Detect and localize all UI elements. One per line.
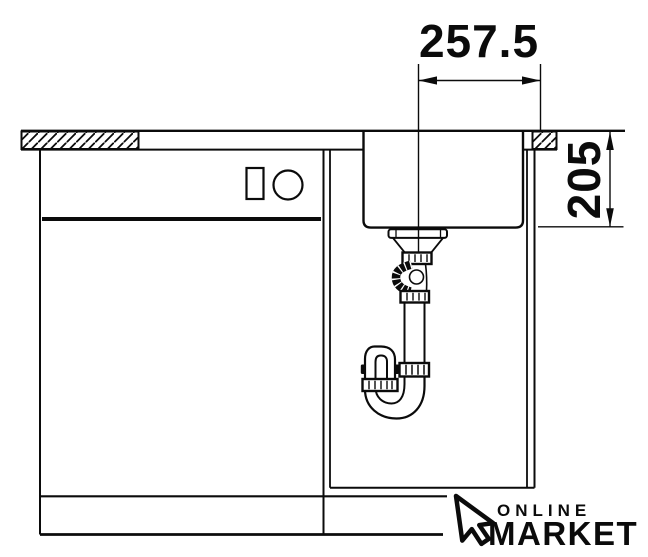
dimension-width: 257.5 (419, 15, 541, 130)
logo: ONLINE MARKET (456, 491, 638, 552)
width-dimension-label: 257.5 (419, 15, 539, 67)
countertop (21, 131, 625, 150)
countertop-hatch-left (22, 132, 139, 150)
outlet-loop-outer (365, 347, 395, 382)
countertop-hatch-right (533, 132, 557, 150)
elbow-bowl (410, 270, 424, 284)
elbow-right-edge (426, 264, 427, 291)
coupling-nut-outlet (363, 379, 398, 391)
drawer-knob-circle (274, 171, 303, 200)
depth-dimension-label: 205 (558, 140, 610, 220)
sink-basin (364, 131, 524, 228)
cabinet (40, 150, 535, 535)
drain-flange (389, 229, 448, 238)
outlet-loop-inner (376, 356, 388, 382)
logo-text-bottom: MARKET (488, 515, 638, 552)
drawer-knob-rect (247, 168, 264, 199)
outlet-lug-left (361, 365, 366, 375)
sink-installation-drawing: 257.5 205 ONLINE MARKET (0, 0, 648, 557)
drain-siphon (361, 64, 447, 419)
drawing-canvas: 257.5 205 ONLINE MARKET (0, 0, 648, 557)
basin-outline (364, 131, 524, 228)
width-arrow-right (522, 76, 541, 84)
coupling-nut-pipe (400, 363, 430, 377)
coupling-nut-middle (401, 291, 430, 303)
width-arrow-left (419, 76, 438, 84)
